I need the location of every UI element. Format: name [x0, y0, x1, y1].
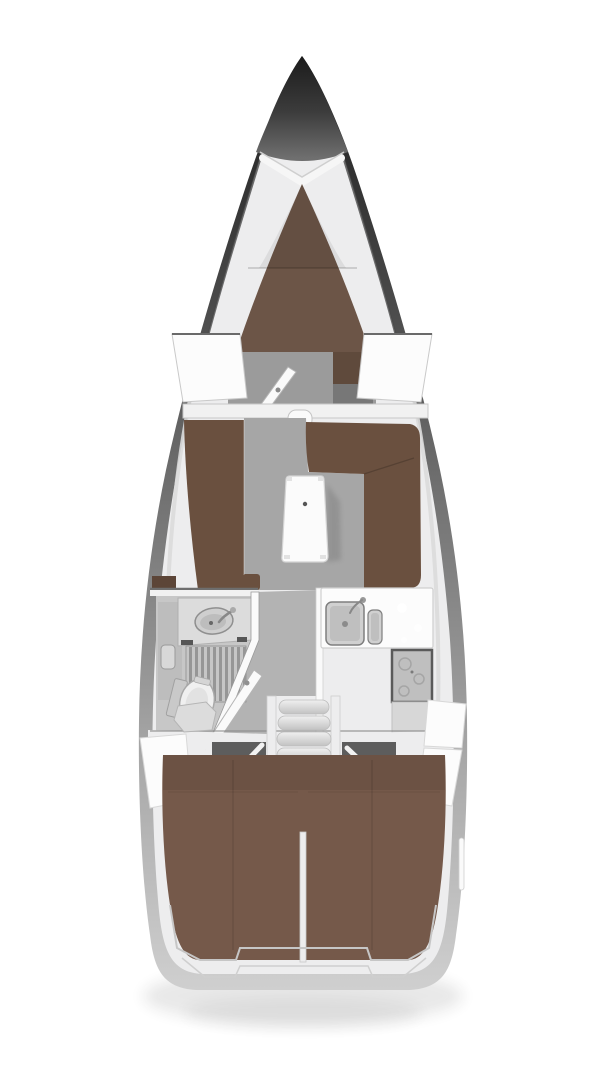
counter-sparkle-3	[401, 637, 407, 643]
galley-sink-small-bowl	[371, 613, 379, 641]
aft-cabin-divider	[300, 832, 306, 962]
swim-locker-slot	[459, 838, 464, 890]
galley-sink-drain	[342, 621, 348, 627]
head-forward-wall-band	[150, 590, 258, 596]
starboard-side-panel	[357, 334, 432, 402]
bow-cone	[256, 56, 348, 161]
aft-cabins	[162, 755, 464, 962]
table-leg-notch-tl	[287, 477, 292, 481]
yacht-floor-plan-image	[0, 0, 608, 1080]
washbasin-drain	[209, 621, 213, 625]
counter-sparkle-2	[414, 624, 422, 632]
port-side-panel	[172, 334, 247, 402]
winch-pad-port	[174, 702, 216, 732]
counter-sparkle-1	[397, 603, 407, 613]
aft-berth-head-shade	[163, 755, 445, 790]
stove	[392, 650, 432, 702]
table-leg-notch-br	[320, 555, 326, 559]
table-leg-notch-bl	[284, 555, 290, 559]
head-door-handle	[245, 681, 250, 686]
washbasin-faucet-base	[230, 607, 236, 613]
stove-knob	[411, 671, 414, 674]
saloon	[184, 418, 421, 590]
saloon-table	[282, 476, 328, 562]
table-leg-notch-tr	[318, 477, 323, 481]
table-mast-fitting	[303, 502, 307, 506]
head-side-cabinet-door	[161, 645, 175, 669]
counter-latch-right	[237, 637, 247, 642]
forward-door-handle	[276, 388, 281, 393]
cockpit-locker-starboard-upper	[424, 700, 466, 748]
floor-plan-svg	[0, 0, 608, 1080]
port-settee-return	[232, 574, 260, 590]
counter-latch-left	[181, 640, 193, 645]
